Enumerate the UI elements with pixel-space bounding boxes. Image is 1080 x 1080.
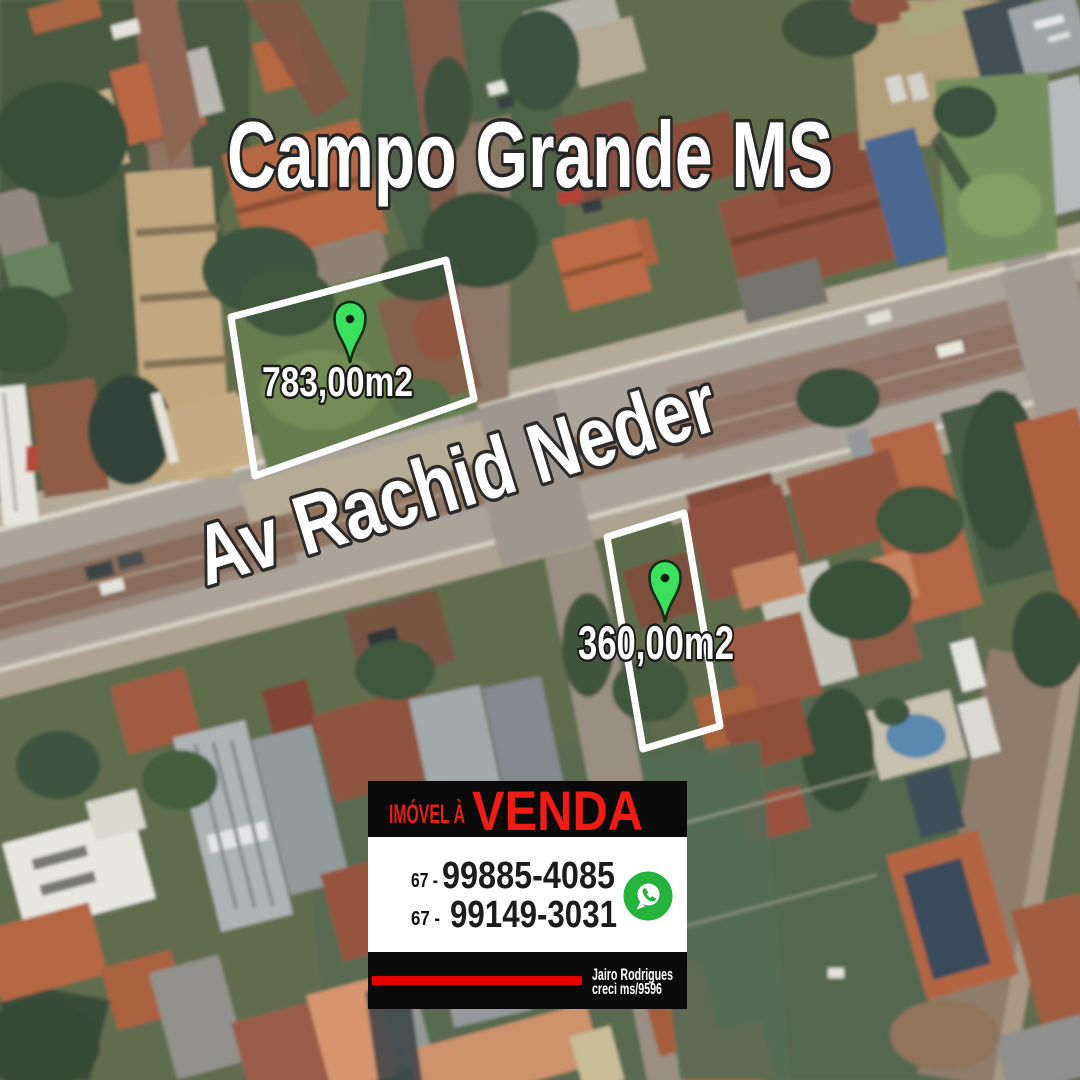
svg-text:67 -: 67 - [411,908,440,930]
svg-text:99885-4085: 99885-4085 [442,855,615,897]
svg-text:360,00m2: 360,00m2 [578,616,734,669]
svg-text:783,00m2: 783,00m2 [262,358,413,405]
svg-text:67 -: 67 - [411,870,438,892]
svg-text:creci ms/9596: creci ms/9596 [592,981,662,998]
svg-text:99149-3031: 99149-3031 [450,894,617,936]
svg-text:Campo Grande MS: Campo Grande MS [227,102,833,207]
svg-text:VENDA: VENDA [472,779,643,842]
svg-text:IMÓVEL À: IMÓVEL À [389,798,465,829]
